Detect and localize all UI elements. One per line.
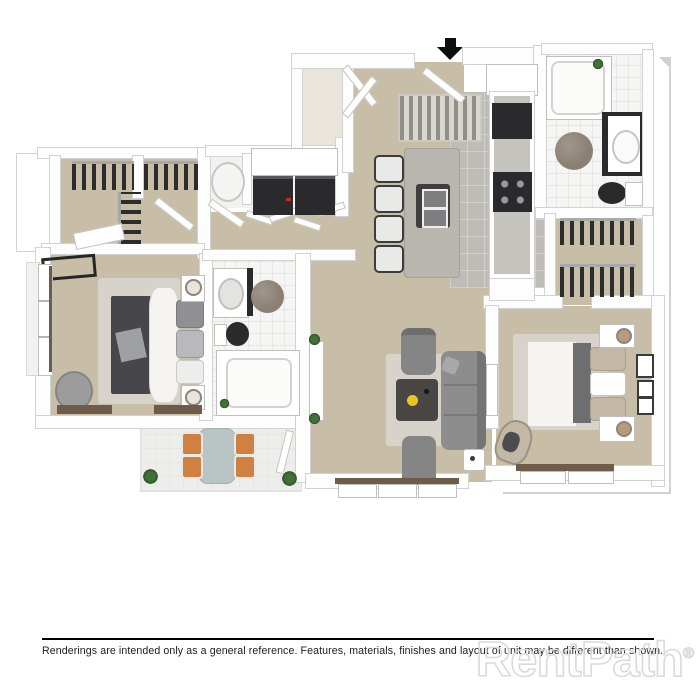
wall-closet2-left [545, 214, 555, 304]
bedroom1-bench-left [57, 405, 112, 414]
bathroom1-round-rug [555, 132, 593, 170]
living-window-pane-3 [418, 484, 457, 498]
coffee-table-small-decor [424, 389, 429, 394]
patio-chair-1 [181, 432, 203, 456]
dryer [295, 176, 335, 215]
wall-bedroom1-left-lower [36, 374, 50, 418]
bedroom2-window-pane-1 [520, 471, 566, 484]
coffee-table-yellow-decor [407, 395, 418, 406]
sofa-cushion-line-1 [444, 384, 477, 386]
living-window-pane-1 [338, 484, 377, 498]
bathroom1-sink [612, 130, 640, 164]
wall-bedroom1-top [42, 244, 204, 254]
closet2-clothes-upper [560, 218, 636, 245]
sofa-back [477, 351, 486, 450]
wall-closet2-right [643, 216, 653, 308]
island-sink-basin-bottom [422, 208, 448, 228]
water-heater-tank [211, 162, 245, 202]
bedroom1-pillow-2 [176, 330, 204, 358]
refrigerator [492, 103, 532, 139]
living-side-table-decor [470, 456, 475, 461]
living-window-pane-2 [378, 484, 417, 498]
armchair-top [401, 328, 436, 375]
bathroom2-round-rug [251, 280, 284, 313]
sofa-cushion-line-2 [444, 414, 477, 416]
bedroom2-wall-art-1 [636, 354, 654, 378]
closet1-clothes-top [72, 161, 134, 190]
closet2-strip-clothes [144, 161, 198, 190]
washer-indicator-light [286, 198, 291, 201]
wall-bathroom1-top [542, 44, 652, 54]
washer [253, 176, 293, 215]
island-sink-basin-top [422, 189, 448, 209]
patio-plant-left [142, 468, 159, 485]
console-table [309, 341, 324, 421]
exterior-line-right [669, 57, 671, 493]
patio-plant-right [281, 470, 298, 487]
bar-stool-1 [374, 155, 404, 183]
bedroom2-wall-art-2 [637, 380, 654, 398]
exterior-corner-notch [659, 57, 669, 67]
laundry-shelf [251, 148, 338, 176]
patio-chair-2 [181, 455, 203, 479]
patio-dining-table [198, 428, 236, 484]
registered-trademark-icon: ® [683, 645, 693, 662]
bedroom1-window-sill-strip [49, 266, 52, 372]
wall-hall-bottom [203, 250, 355, 260]
console-plant-bottom [308, 412, 321, 425]
bathroom1-plant [592, 58, 604, 70]
bathroom2-plant [219, 398, 230, 409]
rentpath-watermark-text: RentPath [476, 633, 683, 687]
bedroom2-pillow-2 [590, 372, 626, 396]
bathroom2-toilet-seat [226, 322, 249, 346]
patio-chair-4 [234, 455, 256, 479]
console-plant-top [308, 333, 321, 346]
bedroom1-pillow-3 [176, 360, 204, 384]
bar-stool-4 [374, 245, 404, 273]
bathroom1-toilet-seat [598, 182, 626, 204]
bedroom1-pillow-1 [176, 300, 204, 328]
bathroom2-sink [218, 278, 244, 310]
exterior-line-bottom-right [503, 492, 671, 494]
range-stove [493, 172, 532, 212]
wall-closet-top [38, 148, 210, 158]
bedroom2-lamp-bottom [616, 421, 632, 437]
patio-chair-3 [234, 432, 256, 456]
bedroom2-door [486, 364, 498, 416]
entry-arrow-icon [437, 47, 463, 60]
bedroom2-wall-art-3 [637, 397, 654, 415]
bedroom1-bench-right [154, 405, 202, 414]
rentpath-watermark: RentPath® [476, 632, 693, 688]
wall-closet-left [50, 156, 60, 252]
floor-plan-canvas: Renderings are intended only as a genera… [0, 0, 697, 697]
bedroom2-bed-runner [573, 343, 591, 423]
bedroom1-lamp-top [185, 279, 202, 296]
bedroom2-lamp-top [616, 328, 632, 344]
bar-stool-3 [374, 215, 404, 243]
closet2-clothes-lower [560, 264, 636, 297]
bedroom2-pillow-1 [590, 347, 626, 371]
bathroom2-tub [226, 358, 292, 408]
wall-bathroom1-right [643, 50, 653, 220]
wall-bedroom1-bottom [36, 416, 306, 428]
bedroom1-duvet-white [149, 287, 179, 403]
bedroom2-window-pane-2 [568, 471, 614, 484]
entry-runner-rug [398, 94, 482, 142]
bedroom2-bed-duvet [527, 341, 577, 427]
bedroom2-window-sill [516, 464, 614, 471]
bar-stool-2 [374, 185, 404, 213]
wall-entry-top-left [292, 54, 414, 68]
bedroom1-lamp-bottom [185, 389, 202, 406]
bathroom1-toilet-tank [625, 182, 643, 206]
